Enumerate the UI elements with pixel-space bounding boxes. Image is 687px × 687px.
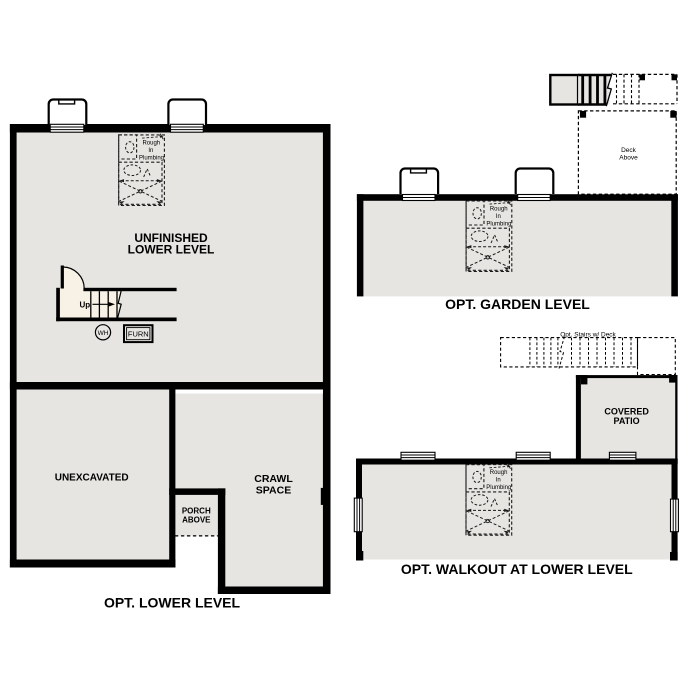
svg-text:CRAWL: CRAWL [254,473,293,485]
svg-text:Up: Up [79,300,90,309]
svg-text:PORCH: PORCH [182,506,211,515]
svg-text:UNEXCAVATED: UNEXCAVATED [55,472,129,483]
svg-text:FURN: FURN [128,330,149,339]
svg-text:OPT. WALKOUT AT LOWER LEVEL: OPT. WALKOUT AT LOWER LEVEL [401,561,633,577]
svg-text:LOWER LEVEL: LOWER LEVEL [128,243,215,257]
svg-text:SPACE: SPACE [256,485,291,497]
svg-text:OPT. GARDEN LEVEL: OPT. GARDEN LEVEL [445,296,590,312]
svg-text:PATIO: PATIO [614,416,640,426]
svg-text:OPT. LOWER LEVEL: OPT. LOWER LEVEL [104,595,241,611]
svg-text:Above: Above [619,154,638,161]
svg-text:Opt. Stairs w/ Deck: Opt. Stairs w/ Deck [560,331,616,338]
svg-text:Deck: Deck [621,147,637,154]
svg-text:ABOVE: ABOVE [182,515,211,524]
svg-text:WH: WH [98,330,109,337]
